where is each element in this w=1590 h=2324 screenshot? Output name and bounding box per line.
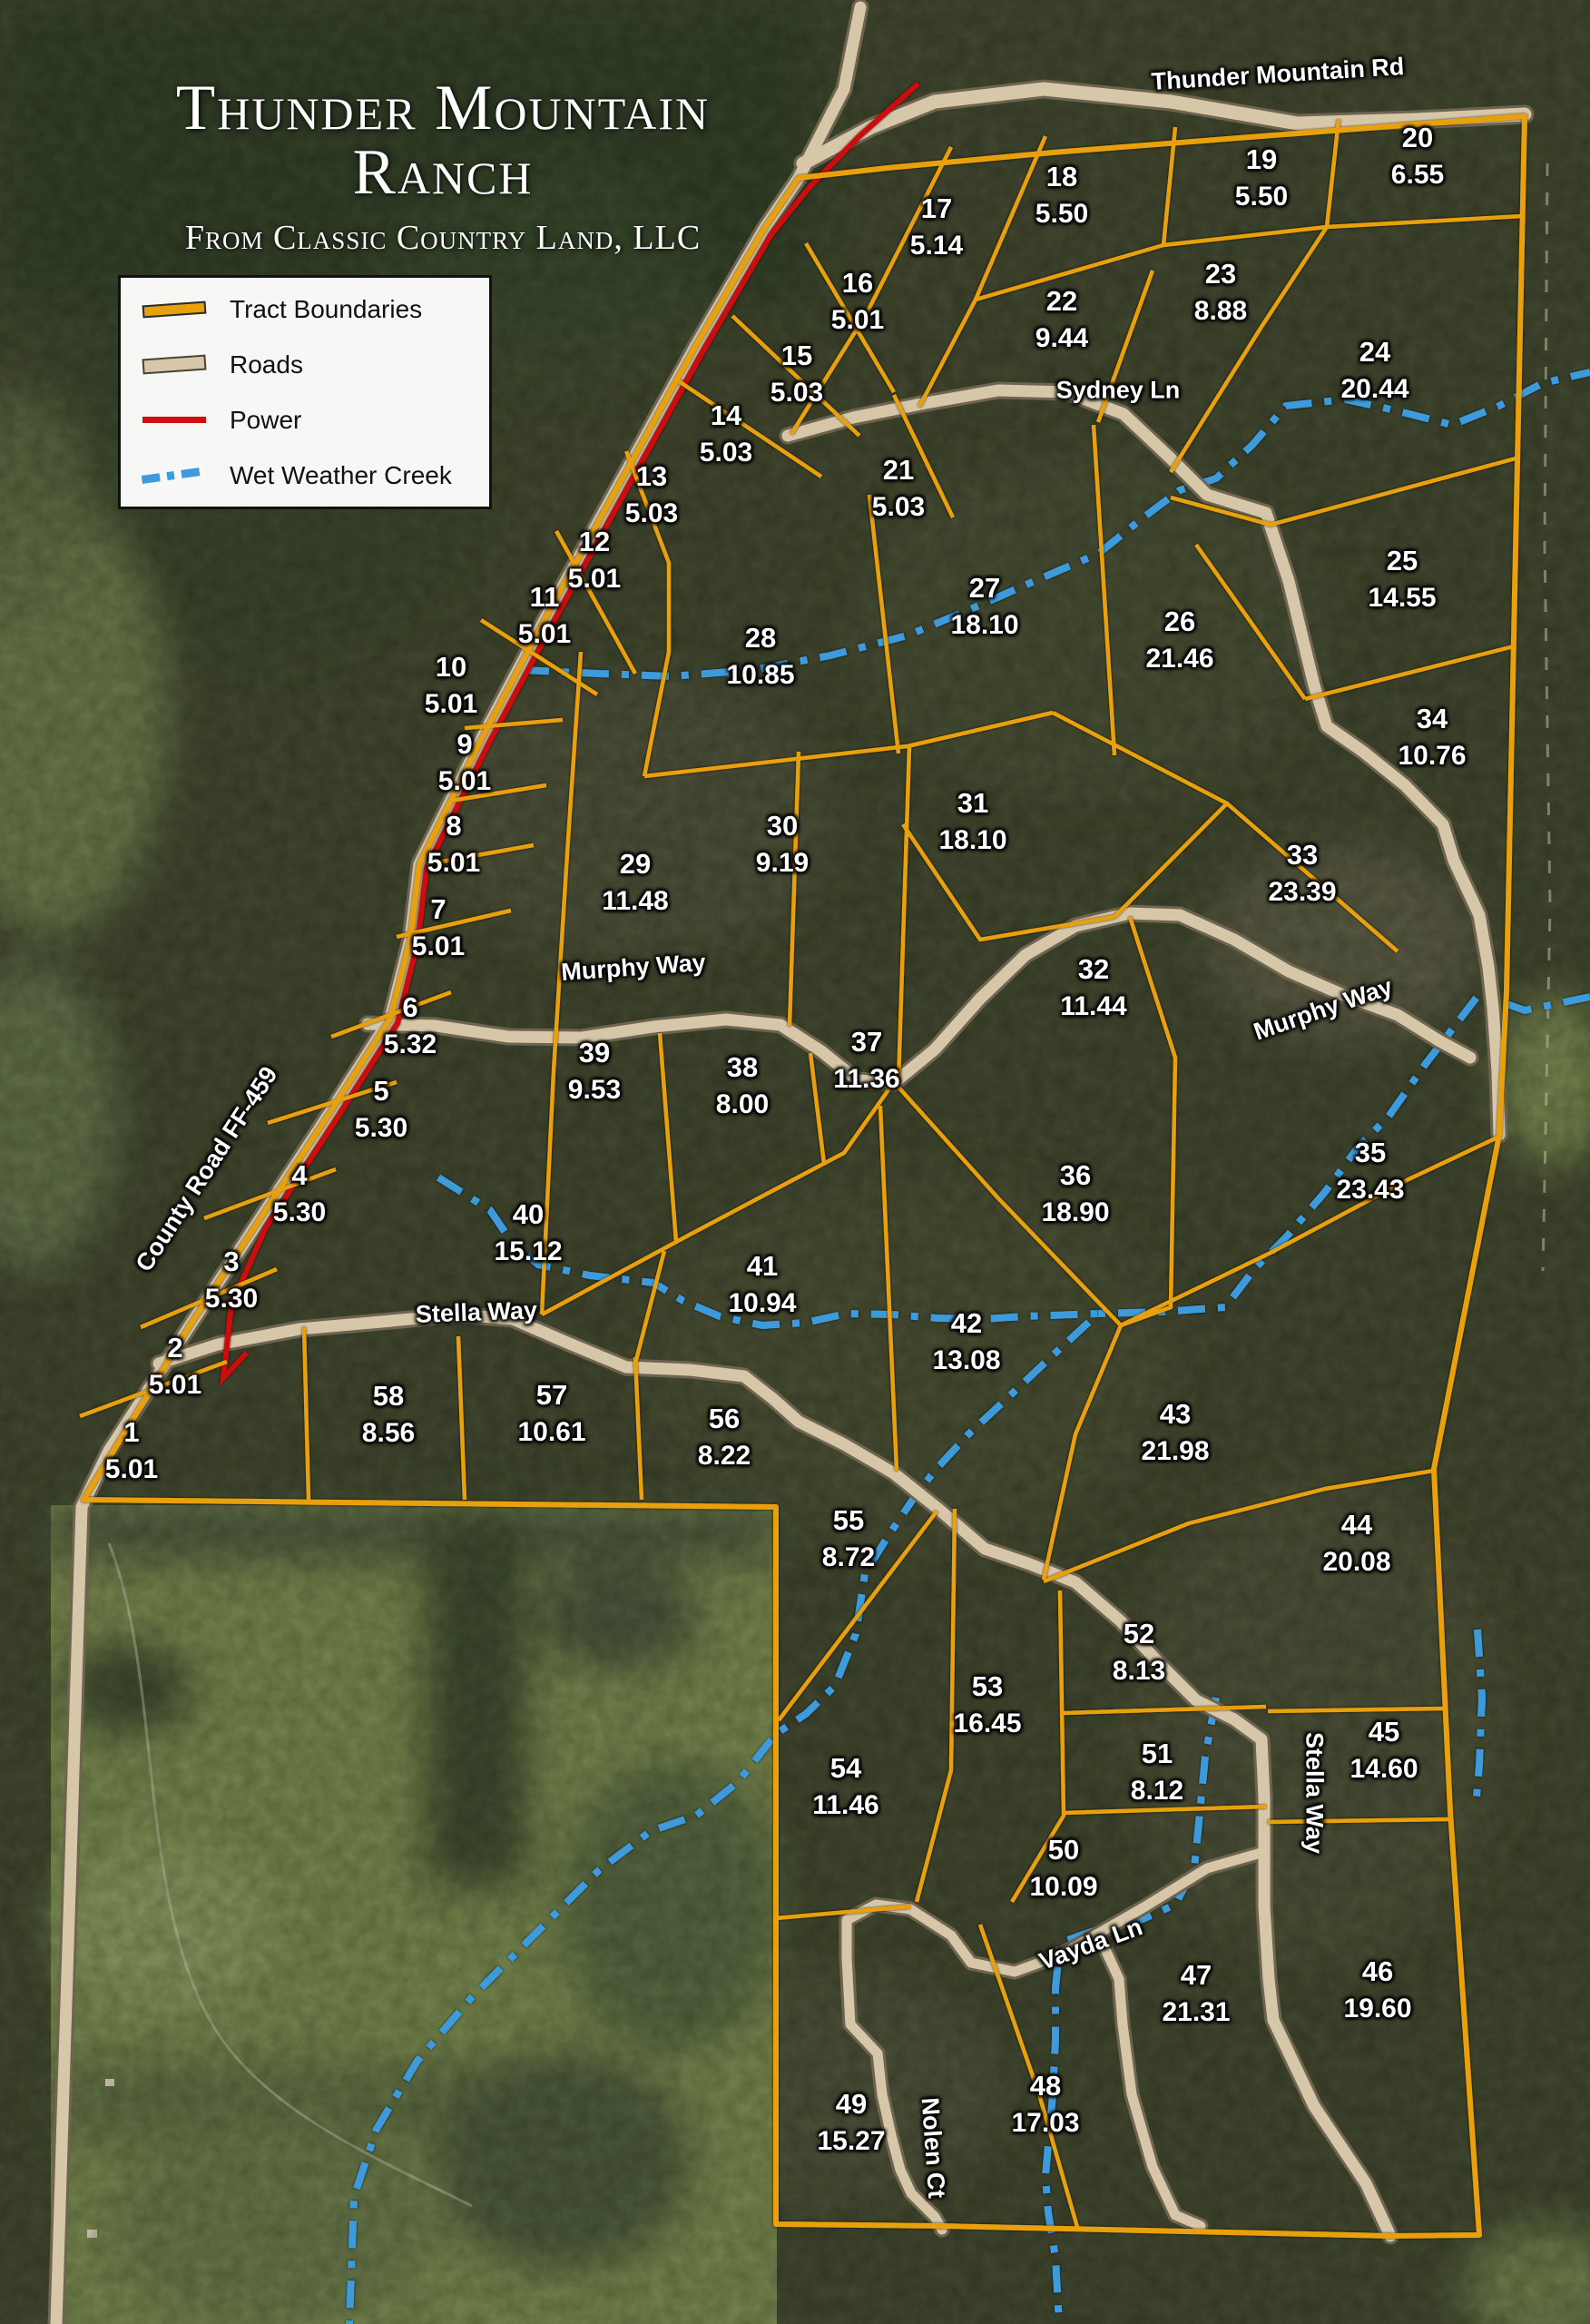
tract-acreage: 8.22 bbox=[698, 1438, 751, 1474]
tract-number: 30 bbox=[756, 808, 809, 845]
tract-acreage: 5.50 bbox=[1035, 196, 1088, 232]
tract-label-40: 4015.12 bbox=[494, 1196, 562, 1270]
tract-label-19: 195.50 bbox=[1235, 142, 1288, 215]
tract-acreage: 10.61 bbox=[517, 1414, 585, 1451]
tract-label-11: 115.01 bbox=[518, 579, 571, 653]
tract-number: 11 bbox=[518, 579, 571, 616]
tract-number: 15 bbox=[770, 338, 823, 375]
tract-number: 3 bbox=[205, 1244, 258, 1281]
tract-number: 48 bbox=[1011, 2068, 1079, 2105]
tract-number: 37 bbox=[833, 1024, 899, 1061]
tract-acreage: 10.85 bbox=[726, 657, 794, 694]
tract-number: 19 bbox=[1235, 142, 1288, 179]
tract-number: 16 bbox=[831, 265, 884, 302]
tract-acreage: 21.98 bbox=[1141, 1433, 1209, 1470]
tract-number: 17 bbox=[910, 191, 963, 228]
tract-label-27: 2718.10 bbox=[950, 570, 1018, 644]
tract-acreage: 8.56 bbox=[362, 1415, 415, 1452]
tract-acreage: 23.39 bbox=[1268, 874, 1336, 911]
tract-acreage: 8.88 bbox=[1194, 293, 1247, 330]
tract-label-21: 215.03 bbox=[872, 452, 925, 526]
tract-number: 46 bbox=[1343, 1954, 1411, 1991]
tract-label-33: 3323.39 bbox=[1268, 837, 1336, 911]
road-symbol-icon bbox=[139, 357, 210, 372]
legend-label: Roads bbox=[230, 350, 303, 379]
tract-number: 55 bbox=[822, 1502, 875, 1540]
tract-label-29: 2911.48 bbox=[602, 846, 668, 920]
tract-number: 22 bbox=[1035, 283, 1088, 320]
tract-acreage: 5.01 bbox=[105, 1452, 158, 1488]
tract-acreage: 5.30 bbox=[273, 1195, 326, 1231]
legend-item-road: Roads bbox=[139, 350, 471, 379]
tract-acreage: 10.09 bbox=[1029, 1869, 1097, 1905]
tract-acreage: 11.36 bbox=[833, 1061, 899, 1098]
tract-acreage: 9.53 bbox=[568, 1072, 621, 1108]
tract-number: 35 bbox=[1336, 1135, 1404, 1172]
tract-number: 5 bbox=[355, 1073, 407, 1110]
tract-acreage: 18.10 bbox=[950, 607, 1018, 644]
tract-number: 58 bbox=[362, 1378, 415, 1415]
tract-label-13: 135.03 bbox=[625, 458, 678, 532]
tract-label-41: 4110.94 bbox=[728, 1248, 796, 1322]
legend-item-creek: Wet Weather Creek bbox=[139, 461, 471, 490]
tract-number: 7 bbox=[412, 891, 465, 929]
map-stage: Thunder Mountain Ranch From Classic Coun… bbox=[0, 0, 1590, 2324]
tract-label-50: 5010.09 bbox=[1029, 1832, 1097, 1905]
legend-label: Wet Weather Creek bbox=[230, 461, 452, 490]
tract-label-39: 399.53 bbox=[568, 1035, 621, 1108]
tract-acreage: 5.03 bbox=[770, 375, 823, 411]
tract-acreage: 6.55 bbox=[1391, 157, 1444, 193]
tract-number: 28 bbox=[726, 620, 794, 657]
tract-label-20: 206.55 bbox=[1391, 120, 1444, 193]
tract-acreage: 5.01 bbox=[518, 616, 571, 653]
tract-label-14: 145.03 bbox=[700, 398, 752, 471]
tract-label-23: 238.88 bbox=[1194, 256, 1247, 330]
tract-acreage: 5.03 bbox=[872, 489, 925, 526]
tract-acreage: 5.01 bbox=[438, 763, 491, 800]
tract-acreage: 5.30 bbox=[355, 1110, 407, 1147]
tract-label-35: 3523.43 bbox=[1336, 1135, 1404, 1208]
tract-number: 45 bbox=[1350, 1714, 1418, 1751]
tract-label-37: 3711.36 bbox=[833, 1024, 899, 1098]
tract-label-2: 25.01 bbox=[149, 1330, 201, 1403]
tract-label-47: 4721.31 bbox=[1162, 1957, 1230, 2031]
tract-label-57: 5710.61 bbox=[517, 1377, 585, 1451]
tract-acreage: 5.01 bbox=[831, 302, 884, 339]
tract-acreage: 5.01 bbox=[427, 845, 480, 881]
tract-acreage: 5.14 bbox=[910, 228, 963, 264]
tract-number: 29 bbox=[602, 846, 668, 883]
tract-label-12: 125.01 bbox=[568, 524, 621, 597]
tract-acreage: 14.55 bbox=[1368, 580, 1436, 616]
tract-number: 38 bbox=[716, 1049, 769, 1087]
tract-number: 49 bbox=[817, 2086, 885, 2123]
tract-acreage: 9.44 bbox=[1035, 320, 1088, 357]
tract-number: 26 bbox=[1145, 604, 1213, 641]
tract-number: 13 bbox=[625, 458, 678, 496]
tract-label-8: 85.01 bbox=[427, 808, 480, 881]
road-label-sydney-ln: Sydney Ln bbox=[1056, 377, 1181, 405]
tract-acreage: 11.48 bbox=[602, 883, 668, 920]
tract-number: 50 bbox=[1029, 1832, 1097, 1869]
tract-label-18: 185.50 bbox=[1035, 159, 1088, 232]
tract-label-30: 309.19 bbox=[756, 808, 809, 881]
tract-label-34: 3410.76 bbox=[1398, 701, 1466, 774]
tract-number: 9 bbox=[438, 726, 491, 763]
tract-acreage: 8.12 bbox=[1131, 1773, 1183, 1809]
tract-label-4: 45.30 bbox=[273, 1157, 326, 1231]
tract-number: 25 bbox=[1368, 543, 1436, 580]
tract-acreage: 16.45 bbox=[953, 1706, 1021, 1742]
tract-acreage: 5.01 bbox=[149, 1367, 201, 1403]
tract-acreage: 19.60 bbox=[1343, 1991, 1411, 2027]
tract-acreage: 20.08 bbox=[1322, 1544, 1390, 1581]
tract-acreage: 15.27 bbox=[817, 2123, 885, 2160]
legend: Tract BoundariesRoadsPowerWet Weather Cr… bbox=[118, 275, 492, 509]
tract-number: 44 bbox=[1322, 1507, 1390, 1544]
tract-label-17: 175.14 bbox=[910, 191, 963, 264]
tract-acreage: 5.50 bbox=[1235, 179, 1288, 215]
tract-number: 1 bbox=[105, 1414, 158, 1452]
tract-acreage: 23.43 bbox=[1336, 1172, 1404, 1208]
tract-number: 10 bbox=[425, 649, 477, 686]
tract-label-28: 2810.85 bbox=[726, 620, 794, 694]
tract-number: 27 bbox=[950, 570, 1018, 607]
tract-acreage: 15.12 bbox=[494, 1234, 562, 1270]
tract-acreage: 5.01 bbox=[425, 686, 477, 723]
tract-label-26: 2621.46 bbox=[1145, 604, 1213, 677]
tract-number: 24 bbox=[1340, 334, 1408, 371]
tract-acreage: 21.31 bbox=[1162, 1994, 1230, 2031]
tract-acreage: 5.03 bbox=[700, 435, 752, 471]
tract-number: 23 bbox=[1194, 256, 1247, 293]
tract-label-5: 55.30 bbox=[355, 1073, 407, 1147]
tract-number: 40 bbox=[494, 1196, 562, 1234]
tract-acreage: 10.94 bbox=[728, 1285, 796, 1322]
tract-acreage: 8.00 bbox=[716, 1087, 769, 1123]
tract-label-45: 4514.60 bbox=[1350, 1714, 1418, 1787]
tract-label-36: 3618.90 bbox=[1041, 1157, 1109, 1231]
tract-number: 20 bbox=[1391, 120, 1444, 157]
tract-label-7: 75.01 bbox=[412, 891, 465, 965]
tract-number: 42 bbox=[932, 1305, 1000, 1343]
tract-label-55: 558.72 bbox=[822, 1502, 875, 1576]
tract-acreage: 11.44 bbox=[1060, 989, 1126, 1025]
road-label-stella-way: Stella Way bbox=[1300, 1732, 1329, 1854]
tract-number: 52 bbox=[1113, 1616, 1165, 1653]
tract-acreage: 8.72 bbox=[822, 1540, 875, 1576]
tract-label-16: 165.01 bbox=[831, 265, 884, 339]
tract-number: 41 bbox=[728, 1248, 796, 1285]
tract-acreage: 8.13 bbox=[1113, 1653, 1165, 1689]
tract-label-31: 3118.10 bbox=[938, 785, 1006, 859]
tract-label-1: 15.01 bbox=[105, 1414, 158, 1488]
tract-number: 53 bbox=[953, 1669, 1021, 1706]
tract-label-44: 4420.08 bbox=[1322, 1507, 1390, 1581]
tract-acreage: 18.10 bbox=[938, 822, 1006, 859]
tract-label-32: 3211.44 bbox=[1060, 951, 1126, 1025]
tract-number: 31 bbox=[938, 785, 1006, 822]
tract-number: 21 bbox=[872, 452, 925, 489]
tract-label-54: 5411.46 bbox=[812, 1750, 878, 1824]
tract-acreage: 21.46 bbox=[1145, 641, 1213, 677]
legend-item-power: Power bbox=[139, 406, 471, 435]
tract-number: 8 bbox=[427, 808, 480, 845]
tract-acreage: 18.90 bbox=[1041, 1195, 1109, 1231]
tract-label-38: 388.00 bbox=[716, 1049, 769, 1123]
page-subtitle: From Classic Country Land, LLC bbox=[80, 218, 806, 258]
legend-item-tract: Tract Boundaries bbox=[139, 295, 471, 324]
map-title-block: Thunder Mountain Ranch From Classic Coun… bbox=[80, 76, 806, 258]
tract-acreage: 5.30 bbox=[205, 1281, 258, 1317]
tract-label-10: 105.01 bbox=[425, 649, 477, 723]
tract-number: 47 bbox=[1162, 1957, 1230, 1994]
tract-label-6: 65.32 bbox=[384, 990, 437, 1063]
tract-label-24: 2420.44 bbox=[1340, 334, 1408, 408]
tract-label-48: 4817.03 bbox=[1011, 2068, 1079, 2142]
tract-acreage: 5.01 bbox=[412, 929, 465, 965]
tract-acreage: 9.19 bbox=[756, 845, 809, 881]
road-label-stella-way: Stella Way bbox=[415, 1296, 537, 1329]
tract-symbol-icon bbox=[139, 303, 210, 316]
tract-acreage: 17.03 bbox=[1011, 2105, 1079, 2142]
power-symbol-icon bbox=[139, 417, 210, 423]
tract-label-25: 2514.55 bbox=[1368, 543, 1436, 616]
tract-acreage: 5.01 bbox=[568, 561, 621, 597]
tract-acreage: 5.03 bbox=[625, 496, 678, 532]
tract-number: 54 bbox=[812, 1750, 878, 1787]
tract-acreage: 14.60 bbox=[1350, 1751, 1418, 1787]
tract-label-15: 155.03 bbox=[770, 338, 823, 411]
page-title: Thunder Mountain Ranch bbox=[80, 76, 806, 205]
tract-number: 6 bbox=[384, 990, 437, 1027]
tract-label-52: 528.13 bbox=[1113, 1616, 1165, 1689]
tract-number: 56 bbox=[698, 1401, 751, 1438]
tract-number: 39 bbox=[568, 1035, 621, 1072]
tract-acreage: 5.32 bbox=[384, 1027, 437, 1063]
tract-number: 14 bbox=[700, 398, 752, 435]
tract-number: 4 bbox=[273, 1157, 326, 1195]
tract-number: 12 bbox=[568, 524, 621, 561]
tract-number: 2 bbox=[149, 1330, 201, 1367]
tract-acreage: 11.46 bbox=[812, 1787, 878, 1824]
tract-acreage: 13.08 bbox=[932, 1343, 1000, 1379]
legend-label: Tract Boundaries bbox=[230, 295, 422, 324]
tract-number: 34 bbox=[1398, 701, 1466, 738]
tract-acreage: 10.76 bbox=[1398, 738, 1466, 774]
tract-label-53: 5316.45 bbox=[953, 1669, 1021, 1742]
tract-label-49: 4915.27 bbox=[817, 2086, 885, 2160]
tract-number: 51 bbox=[1131, 1736, 1183, 1773]
tract-label-3: 35.30 bbox=[205, 1244, 258, 1317]
tract-number: 57 bbox=[517, 1377, 585, 1414]
legend-label: Power bbox=[230, 406, 301, 435]
tract-number: 43 bbox=[1141, 1396, 1209, 1433]
tract-label-56: 568.22 bbox=[698, 1401, 751, 1474]
tract-number: 32 bbox=[1060, 951, 1126, 989]
tract-number: 33 bbox=[1268, 837, 1336, 874]
creek-symbol-icon bbox=[139, 471, 210, 479]
tract-label-51: 518.12 bbox=[1131, 1736, 1183, 1809]
tract-number: 36 bbox=[1041, 1157, 1109, 1195]
tract-acreage: 20.44 bbox=[1340, 371, 1408, 408]
tract-label-46: 4619.60 bbox=[1343, 1954, 1411, 2027]
tract-label-43: 4321.98 bbox=[1141, 1396, 1209, 1470]
tract-label-22: 229.44 bbox=[1035, 283, 1088, 357]
tract-label-42: 4213.08 bbox=[932, 1305, 1000, 1379]
tract-label-9: 95.01 bbox=[438, 726, 491, 800]
tract-number: 18 bbox=[1035, 159, 1088, 196]
tract-label-58: 588.56 bbox=[362, 1378, 415, 1452]
